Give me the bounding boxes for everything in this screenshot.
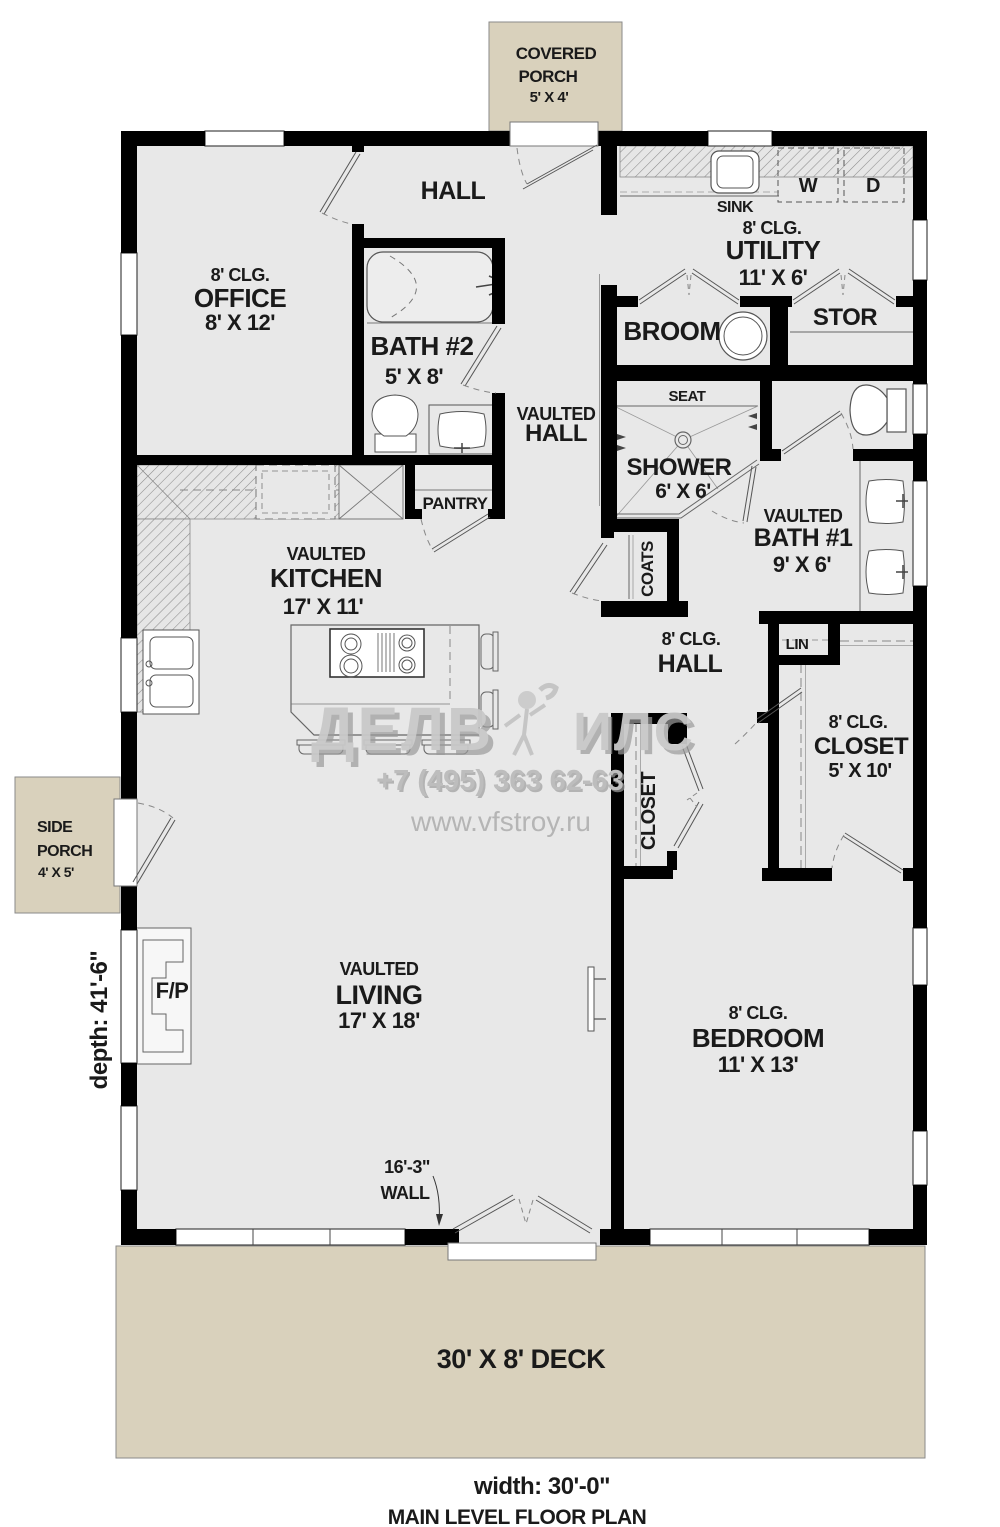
- svg-text:STOR: STOR: [813, 304, 877, 331]
- svg-text:PANTRY: PANTRY: [423, 494, 489, 513]
- svg-text:SINK: SINK: [717, 199, 754, 216]
- svg-text:ИЛС: ИЛС: [573, 702, 695, 762]
- svg-text:LIN: LIN: [786, 636, 809, 653]
- svg-text:F/P: F/P: [156, 978, 189, 1003]
- svg-text:11' X 13': 11' X 13': [718, 1052, 799, 1077]
- svg-text:5' X 8': 5' X 8': [385, 364, 444, 389]
- svg-text:8' CLG.: 8' CLG.: [829, 712, 888, 732]
- svg-text:17' X 11': 17' X 11': [283, 594, 364, 619]
- svg-text:6' X 6': 6' X 6': [655, 480, 711, 503]
- svg-text:ДЕЛВ: ДЕЛВ: [311, 695, 494, 763]
- svg-text:8' CLG.: 8' CLG.: [211, 265, 270, 285]
- svg-text:OFFICE: OFFICE: [194, 283, 286, 313]
- svg-text:+7 (495) 363 62-63: +7 (495) 363 62-63: [376, 765, 624, 797]
- svg-text:W: W: [799, 175, 818, 197]
- svg-text:CLOSET: CLOSET: [638, 772, 660, 850]
- svg-text:PORCH: PORCH: [37, 843, 92, 860]
- svg-text:17' X 18': 17' X 18': [338, 1008, 420, 1033]
- svg-text:BATH #1: BATH #1: [754, 524, 853, 552]
- svg-text:CLOSET: CLOSET: [814, 733, 909, 760]
- svg-text:VAULTED: VAULTED: [287, 544, 366, 564]
- svg-text:SEAT: SEAT: [669, 388, 706, 405]
- svg-text:5' X 10': 5' X 10': [828, 760, 891, 782]
- svg-text:VAULTED: VAULTED: [340, 959, 419, 979]
- svg-text:www.vfstroy.ru: www.vfstroy.ru: [410, 806, 591, 837]
- svg-text:HALL: HALL: [421, 177, 486, 205]
- svg-text:8' X 12': 8' X 12': [205, 310, 275, 335]
- svg-text:8' CLG.: 8' CLG.: [662, 629, 721, 649]
- svg-text:LIVING: LIVING: [335, 980, 422, 1010]
- svg-text:MAIN LEVEL FLOOR PLAN: MAIN LEVEL FLOOR PLAN: [388, 1506, 647, 1527]
- svg-text:BATH #2: BATH #2: [371, 331, 474, 361]
- svg-text:PORCH: PORCH: [519, 67, 578, 86]
- svg-text:width: 30'-0": width: 30'-0": [473, 1473, 610, 1500]
- svg-text:5' X 4': 5' X 4': [530, 89, 569, 106]
- svg-text:KITCHEN: KITCHEN: [270, 563, 382, 593]
- svg-text:HALL: HALL: [658, 650, 723, 678]
- svg-text:30' X 8' DECK: 30' X 8' DECK: [437, 1344, 606, 1374]
- svg-text:SIDE: SIDE: [37, 819, 73, 836]
- svg-text:COVERED: COVERED: [516, 44, 597, 63]
- svg-text:depth: 41'-6": depth: 41'-6": [86, 951, 113, 1090]
- svg-text:HALL: HALL: [525, 420, 587, 447]
- svg-text:8' CLG.: 8' CLG.: [729, 1003, 788, 1023]
- svg-text:WALL: WALL: [381, 1183, 430, 1203]
- svg-text:11' X 6': 11' X 6': [739, 265, 808, 290]
- svg-text:COATS: COATS: [638, 541, 657, 597]
- svg-text:16'-3": 16'-3": [384, 1157, 430, 1177]
- svg-text:UTILITY: UTILITY: [726, 235, 821, 265]
- svg-text:4' X 5': 4' X 5': [38, 864, 74, 880]
- svg-text:SHOWER: SHOWER: [627, 454, 732, 481]
- svg-text:VAULTED: VAULTED: [764, 506, 843, 526]
- svg-text:BEDROOM: BEDROOM: [692, 1023, 824, 1053]
- svg-text:D: D: [866, 175, 880, 197]
- svg-text:9' X 6': 9' X 6': [773, 552, 832, 577]
- svg-text:BROOM: BROOM: [623, 316, 720, 346]
